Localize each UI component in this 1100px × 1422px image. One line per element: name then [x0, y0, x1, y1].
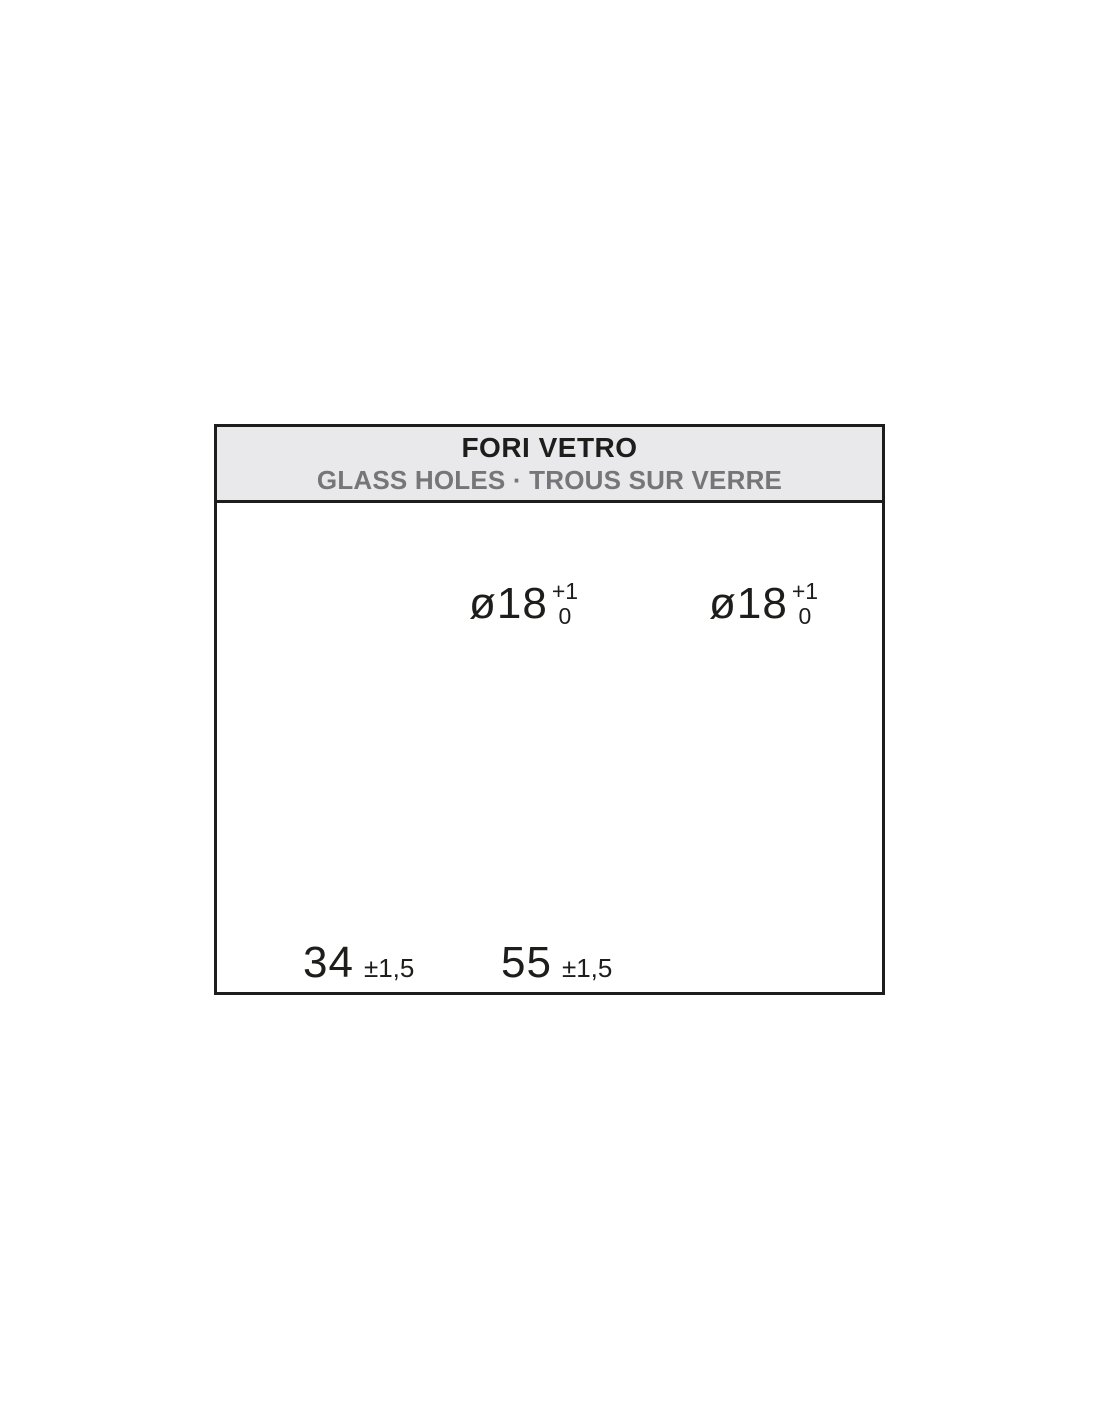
- hole-1-diameter-value: ø18: [469, 583, 548, 625]
- dimension-34-value: 34: [303, 941, 354, 985]
- hole-2-tolerance-upper: +1: [792, 579, 818, 604]
- dimension-55-tolerance: ±1,5: [562, 953, 612, 984]
- dimension-55-label: 55 ±1,5: [501, 941, 612, 985]
- dimension-34-label: 34 ±1,5: [303, 941, 414, 985]
- page: FORI VETRO GLASS HOLES · TROUS SUR VERRE…: [0, 0, 1100, 1422]
- dimension-34-tolerance: ±1,5: [364, 953, 414, 984]
- header-subtitle: GLASS HOLES · TROUS SUR VERRE: [317, 465, 782, 496]
- dimension-55-value: 55: [501, 941, 552, 985]
- hole-2-diameter-label: ø18 +1 0: [709, 583, 818, 629]
- hole-2-diameter-value: ø18: [709, 583, 788, 625]
- hole-1-tolerance-lower: 0: [559, 604, 572, 629]
- header-title: FORI VETRO: [461, 432, 637, 464]
- hole-2-tolerance-lower: 0: [799, 604, 812, 629]
- hole-1-tolerance-stack: +1 0: [552, 579, 578, 629]
- spec-frame: FORI VETRO GLASS HOLES · TROUS SUR VERRE: [214, 424, 885, 995]
- spec-header: FORI VETRO GLASS HOLES · TROUS SUR VERRE: [217, 427, 882, 503]
- hole-1-tolerance-upper: +1: [552, 579, 578, 604]
- hole-1-diameter-label: ø18 +1 0: [469, 583, 578, 629]
- hole-2-tolerance-stack: +1 0: [792, 579, 818, 629]
